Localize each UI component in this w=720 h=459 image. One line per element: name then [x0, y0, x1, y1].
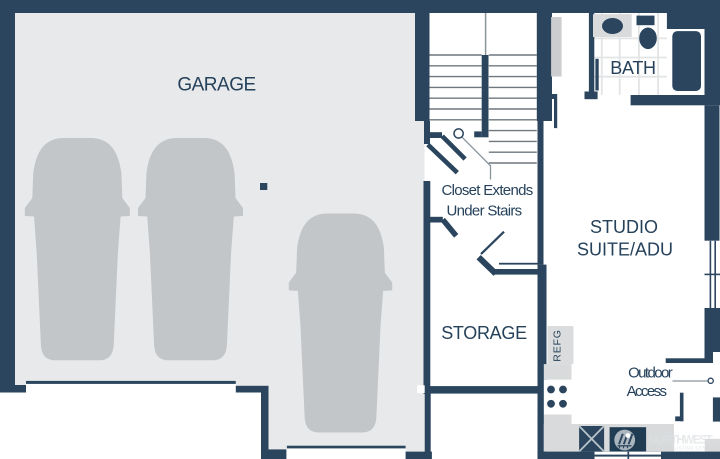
svg-text:MULTIPLE LISTING SERVICE: MULTIPLE LISTING SERVICE [649, 446, 717, 451]
svg-text:Access: Access [627, 383, 667, 400]
svg-text:Closet Extends: Closet Extends [441, 182, 532, 199]
svg-text:SUITE/ADU: SUITE/ADU [577, 239, 673, 259]
svg-text:BATH: BATH [610, 58, 655, 78]
svg-text:STUDIO: STUDIO [590, 217, 658, 237]
svg-text:Under Stairs: Under Stairs [447, 203, 522, 220]
svg-text:REFG: REFG [552, 329, 564, 361]
svg-text:GARAGE: GARAGE [177, 75, 255, 96]
svg-text:STORAGE: STORAGE [441, 323, 527, 343]
svg-text:Outdoor: Outdoor [628, 364, 673, 381]
